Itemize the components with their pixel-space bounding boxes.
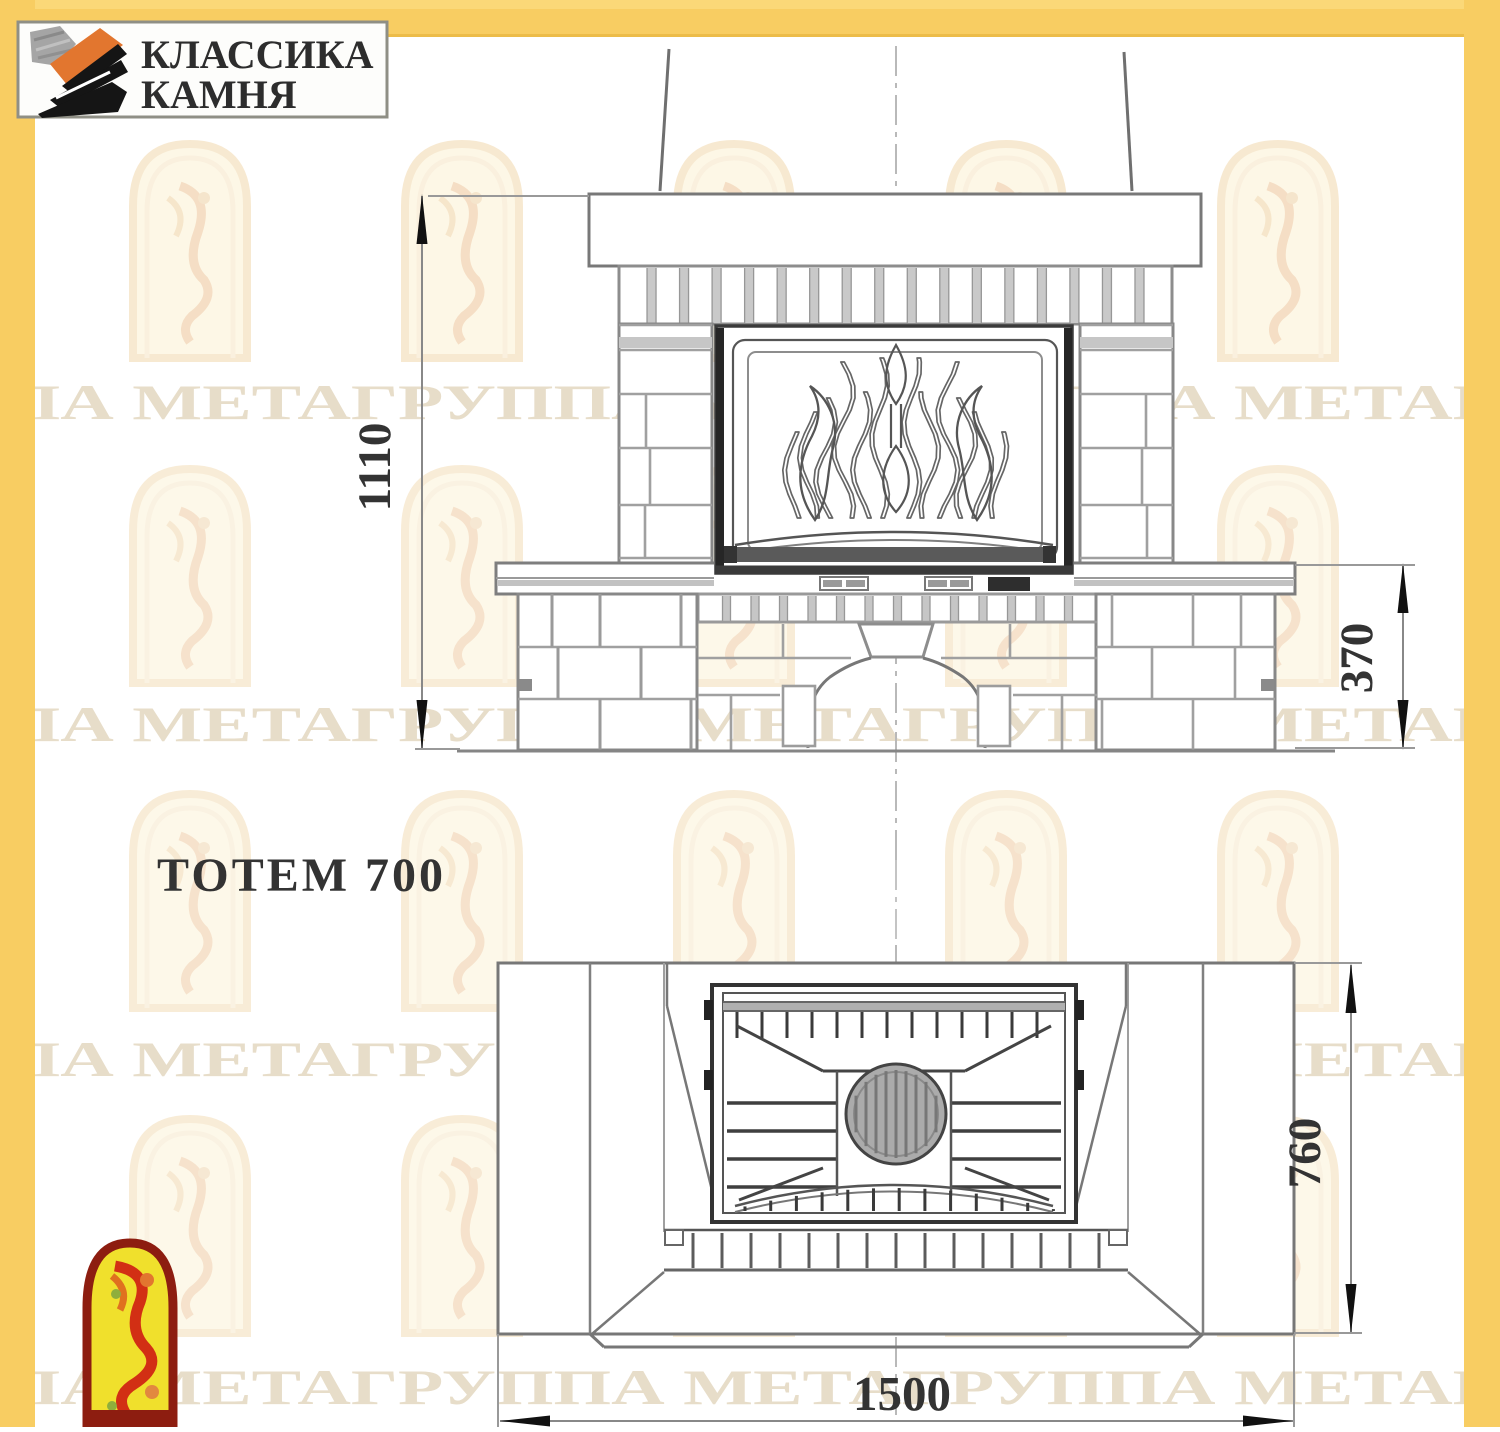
svg-text:ТОТЕМ 700: ТОТЕМ 700 [157, 849, 446, 902]
svg-text:КАМНЯ: КАМНЯ [141, 72, 297, 117]
svg-text:1500: 1500 [853, 1366, 951, 1421]
svg-text:КЛАССИКА: КЛАССИКА [141, 32, 374, 77]
svg-text:ППА МЕТАГРУППА МЕТАГРУППА МЕТА: ППА МЕТАГРУППА МЕТАГРУППА МЕТАГР [0, 1359, 1500, 1415]
svg-text:760: 760 [1279, 1118, 1331, 1189]
svg-text:370: 370 [1331, 623, 1383, 694]
svg-text:1110: 1110 [349, 423, 401, 512]
